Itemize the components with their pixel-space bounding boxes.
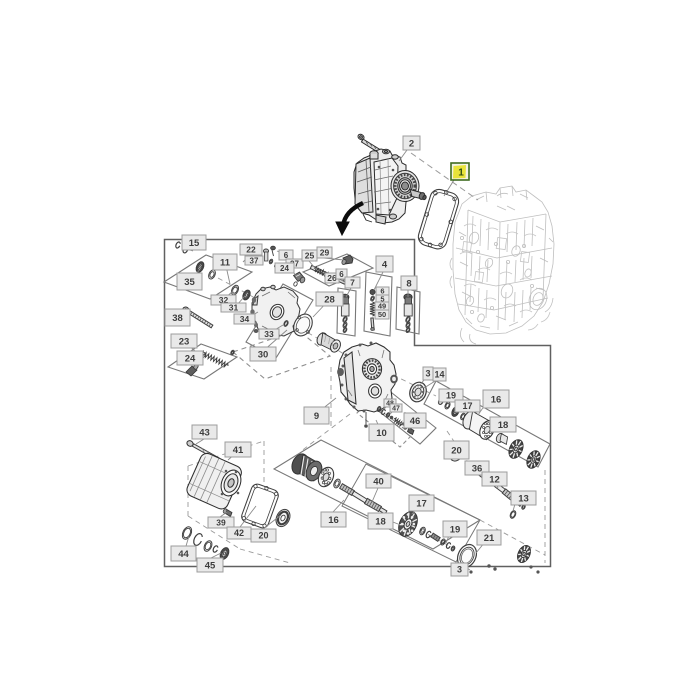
svg-text:13: 13 xyxy=(518,493,529,504)
svg-text:14: 14 xyxy=(434,370,444,380)
svg-text:43: 43 xyxy=(199,427,210,438)
svg-text:2: 2 xyxy=(409,138,414,149)
svg-text:36: 36 xyxy=(472,463,483,474)
svg-text:20: 20 xyxy=(451,445,462,456)
svg-text:24: 24 xyxy=(280,264,289,273)
svg-text:21: 21 xyxy=(484,533,495,544)
svg-text:8: 8 xyxy=(406,278,411,289)
svg-text:35: 35 xyxy=(184,277,195,288)
svg-text:28: 28 xyxy=(324,294,335,305)
svg-text:22: 22 xyxy=(246,245,256,255)
svg-text:46: 46 xyxy=(410,416,421,427)
svg-text:12: 12 xyxy=(489,474,500,485)
svg-text:3: 3 xyxy=(457,565,462,575)
svg-text:20: 20 xyxy=(258,531,268,541)
svg-text:33: 33 xyxy=(264,329,274,339)
svg-text:17: 17 xyxy=(416,498,427,509)
svg-text:7: 7 xyxy=(350,278,355,288)
svg-text:38: 38 xyxy=(172,313,183,324)
svg-text:3: 3 xyxy=(425,369,430,379)
svg-text:18: 18 xyxy=(375,516,386,527)
svg-text:19: 19 xyxy=(446,391,456,401)
svg-text:42: 42 xyxy=(234,528,244,538)
svg-text:40: 40 xyxy=(373,476,384,487)
svg-text:16: 16 xyxy=(491,394,502,405)
svg-text:34: 34 xyxy=(240,314,250,324)
svg-text:24: 24 xyxy=(185,353,196,364)
svg-text:1: 1 xyxy=(458,168,464,179)
svg-text:45: 45 xyxy=(205,560,216,571)
svg-text:30: 30 xyxy=(258,349,269,360)
svg-text:19: 19 xyxy=(450,524,461,535)
svg-text:47: 47 xyxy=(392,406,400,413)
svg-text:15: 15 xyxy=(189,238,200,249)
svg-text:4: 4 xyxy=(382,259,388,270)
svg-text:16: 16 xyxy=(328,515,339,526)
svg-text:41: 41 xyxy=(233,445,244,456)
svg-text:25: 25 xyxy=(305,251,315,261)
svg-text:9: 9 xyxy=(314,411,319,422)
svg-text:50: 50 xyxy=(378,310,386,319)
svg-text:17: 17 xyxy=(462,401,472,411)
svg-text:10: 10 xyxy=(376,428,387,439)
svg-text:11: 11 xyxy=(220,257,231,268)
svg-text:29: 29 xyxy=(320,248,330,258)
svg-text:44: 44 xyxy=(178,549,189,560)
svg-text:39: 39 xyxy=(216,518,226,528)
svg-text:31: 31 xyxy=(229,303,239,313)
svg-text:37: 37 xyxy=(250,256,259,265)
svg-text:6: 6 xyxy=(339,270,344,279)
svg-text:23: 23 xyxy=(179,336,190,347)
svg-text:18: 18 xyxy=(498,420,509,431)
